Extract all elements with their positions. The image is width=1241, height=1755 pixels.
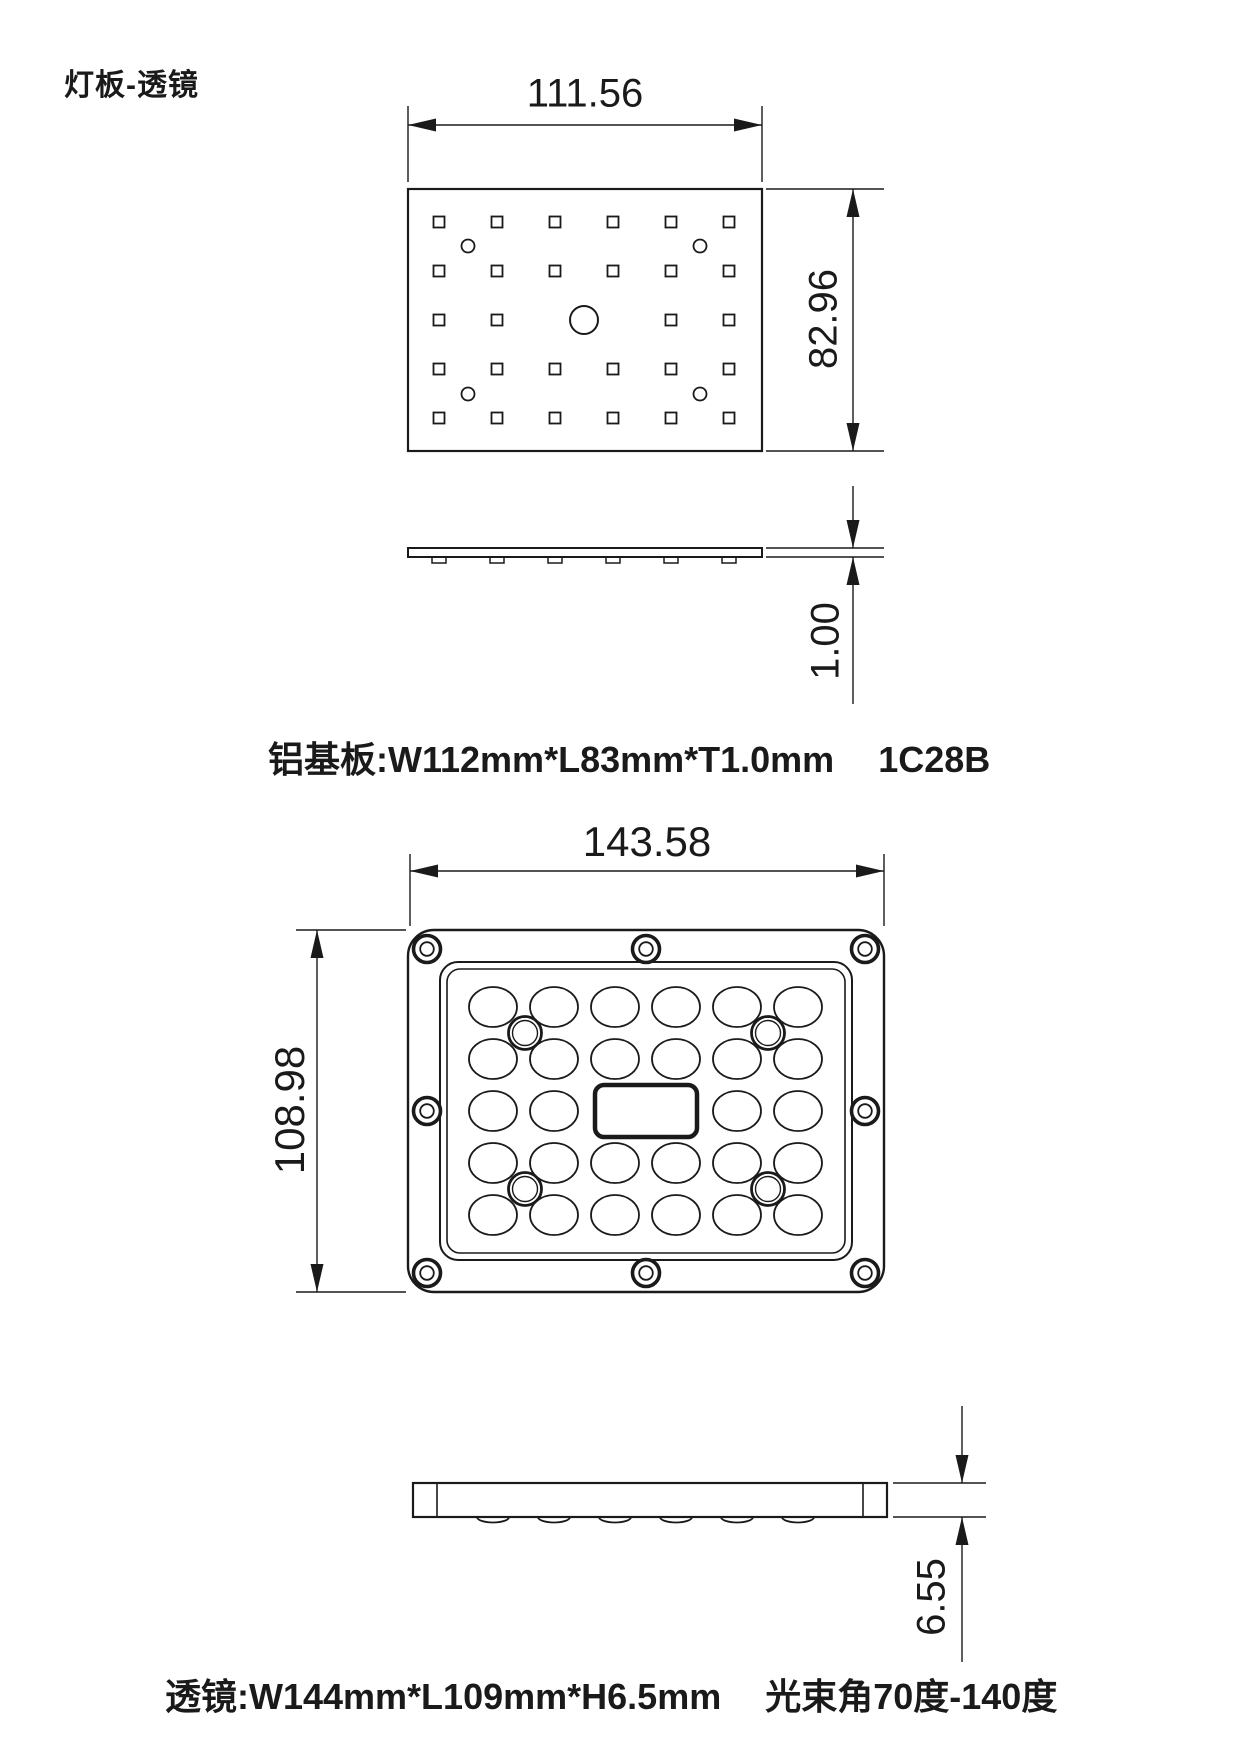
led-pad (724, 364, 735, 375)
screw-hole-inner (420, 1266, 434, 1280)
lens-cell (591, 1039, 639, 1079)
alignment-post-inner (756, 1177, 781, 1202)
pcb-thickness-dimension: 1.00 (804, 602, 849, 680)
dimension-arrow (847, 557, 860, 585)
lens-cell (469, 1143, 517, 1183)
dimension-arrow (408, 119, 436, 132)
led-pad (434, 217, 445, 228)
screw-hole (852, 1098, 879, 1125)
screw-hole-inner (639, 942, 653, 956)
lens-cell (713, 1039, 761, 1079)
screw-hole (633, 936, 660, 963)
pcb-mounting-hole (694, 388, 707, 401)
dimension-arrow (847, 520, 860, 548)
dimension-arrow (856, 865, 884, 878)
screw-hole (852, 1260, 879, 1287)
alignment-post (509, 1017, 542, 1050)
pcb-mounting-hole (462, 388, 475, 401)
led-pad (492, 364, 503, 375)
lens-cell (713, 1195, 761, 1235)
led-pad (666, 217, 677, 228)
led-pad (492, 266, 503, 277)
lens-cell (469, 987, 517, 1027)
screw-hole (633, 1260, 660, 1287)
dimension-arrow (734, 119, 762, 132)
alignment-post (752, 1173, 785, 1206)
led-pad (434, 266, 445, 277)
pcb-caption: 铝基板:W112mm*L83mm*T1.0mm 1C28B (268, 731, 990, 783)
pcb-mounting-hole (694, 240, 707, 253)
led-pad (666, 413, 677, 424)
screw-hole-inner (639, 1266, 653, 1280)
led-pad (550, 413, 561, 424)
pcb-width-dimension: 111.56 (527, 72, 643, 117)
lens-connector-window (595, 1085, 697, 1137)
led-pad (434, 315, 445, 326)
screw-hole-inner (420, 1104, 434, 1118)
lens-caption-spec: 透镜:W144mm*L109mm*H6.5mm (165, 1668, 721, 1720)
technical-drawing (0, 0, 1241, 1755)
screw-hole-inner (420, 942, 434, 956)
lens-cell (774, 1091, 822, 1131)
led-pad (492, 217, 503, 228)
screw-hole-inner (858, 1266, 872, 1280)
led-pad (724, 266, 735, 277)
lens-cell (591, 987, 639, 1027)
lens-cell (652, 1195, 700, 1235)
screw-hole-inner (858, 942, 872, 956)
lens-cell (713, 1143, 761, 1183)
led-pad (550, 266, 561, 277)
lens-cell (469, 1091, 517, 1131)
led-pad (666, 364, 677, 375)
lens-cell (469, 1195, 517, 1235)
lens-top-view (408, 930, 884, 1292)
alignment-post (752, 1017, 785, 1050)
led-pad (434, 413, 445, 424)
dim-pcb-width (408, 106, 762, 182)
alignment-post-inner (756, 1021, 781, 1046)
lens-body-inner-outline (447, 969, 845, 1253)
lens-cell (713, 987, 761, 1027)
led-pad (492, 413, 503, 424)
screw-hole (414, 1260, 441, 1287)
lens-width-dimension: 143.58 (583, 818, 711, 866)
lens-height-dimension: 108.98 (266, 1046, 314, 1174)
lens-side-view (413, 1483, 887, 1523)
pcb-outline (408, 189, 762, 451)
lens-cell (713, 1091, 761, 1131)
alignment-post (509, 1173, 542, 1206)
pcb-height-dimension: 82.96 (802, 269, 847, 369)
led-pad (724, 413, 735, 424)
lens-cell (591, 1195, 639, 1235)
drawing-title: 灯板-透镜 (64, 60, 199, 104)
pcb-side-view (408, 548, 762, 563)
screw-hole-inner (858, 1104, 872, 1118)
led-pad (666, 266, 677, 277)
led-pad (608, 266, 619, 277)
pcb-center-hole (570, 306, 598, 334)
led-pad (608, 217, 619, 228)
alignment-post-inner (513, 1021, 538, 1046)
lens-side-outline (413, 1483, 887, 1517)
led-pad (608, 413, 619, 424)
screw-hole (414, 1098, 441, 1125)
dimension-arrow (311, 930, 324, 958)
dimension-arrow (956, 1455, 969, 1483)
led-pad (724, 315, 735, 326)
led-pad (608, 364, 619, 375)
alignment-post-inner (513, 1177, 538, 1202)
led-pad (434, 364, 445, 375)
lens-cell (469, 1039, 517, 1079)
dimension-arrow (847, 189, 860, 217)
dimension-arrow (847, 423, 860, 451)
lens-cell (530, 1091, 578, 1131)
pcb-caption-spec: 铝基板:W112mm*L83mm*T1.0mm (268, 731, 834, 783)
led-pad (492, 315, 503, 326)
lens-caption: 透镜:W144mm*L109mm*H6.5mm 光束角70度-140度 (165, 1668, 1057, 1720)
led-pad (550, 364, 561, 375)
lens-caption-beam: 光束角70度-140度 (765, 1668, 1057, 1720)
dimension-arrow (311, 1264, 324, 1292)
screw-hole (414, 936, 441, 963)
lens-cell (591, 1143, 639, 1183)
lens-cell (652, 987, 700, 1027)
pcb-top-view (408, 189, 762, 451)
lens-thickness-dimension: 6.55 (910, 1558, 955, 1636)
lens-cell (652, 1039, 700, 1079)
pcb-mounting-hole (462, 240, 475, 253)
led-pad (550, 217, 561, 228)
led-pad (666, 315, 677, 326)
lens-cell (652, 1143, 700, 1183)
led-pad (724, 217, 735, 228)
dimension-arrow (410, 865, 438, 878)
screw-hole (852, 936, 879, 963)
pcb-caption-code: 1C28B (878, 739, 990, 781)
pcb-side-outline (408, 548, 762, 557)
dimension-arrow (956, 1517, 969, 1545)
lens-body-outline (440, 962, 852, 1260)
lens-flange-outline (408, 930, 884, 1292)
